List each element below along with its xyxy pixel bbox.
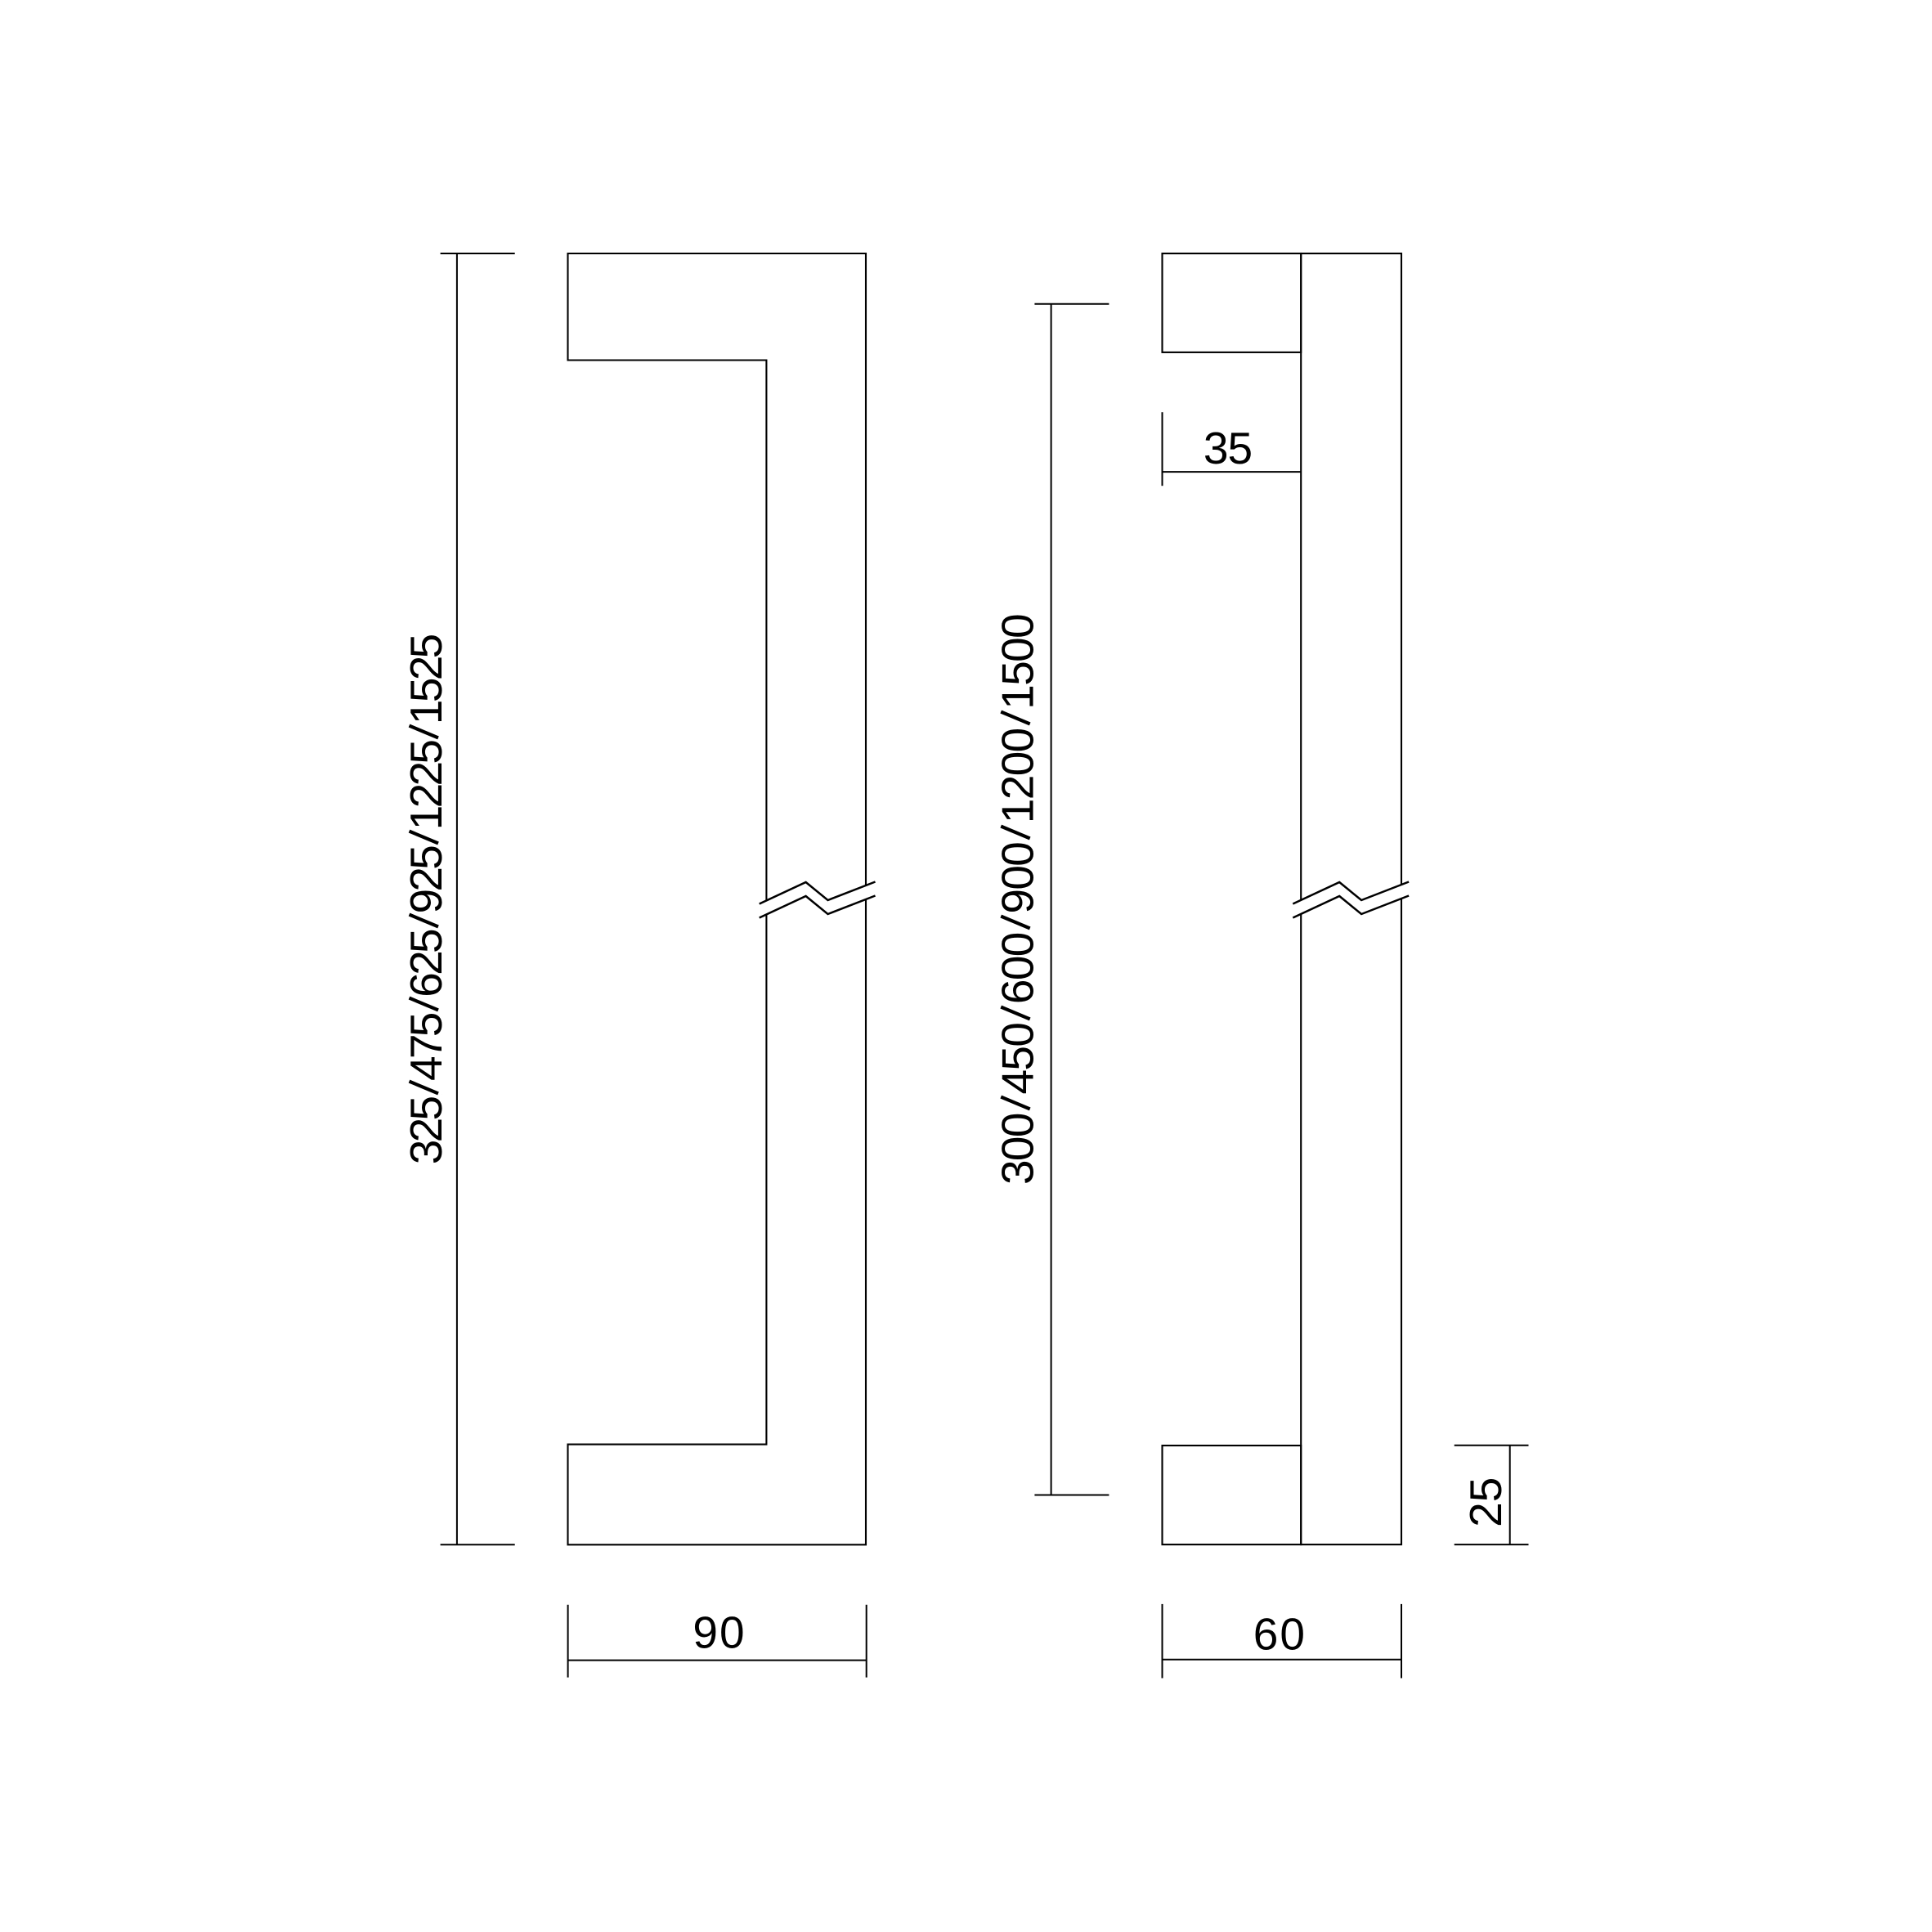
svg-text:35: 35 — [1204, 423, 1252, 473]
svg-text:60: 60 — [1253, 1608, 1307, 1659]
svg-text:25: 25 — [1460, 1477, 1511, 1527]
svg-text:90: 90 — [693, 1607, 746, 1658]
